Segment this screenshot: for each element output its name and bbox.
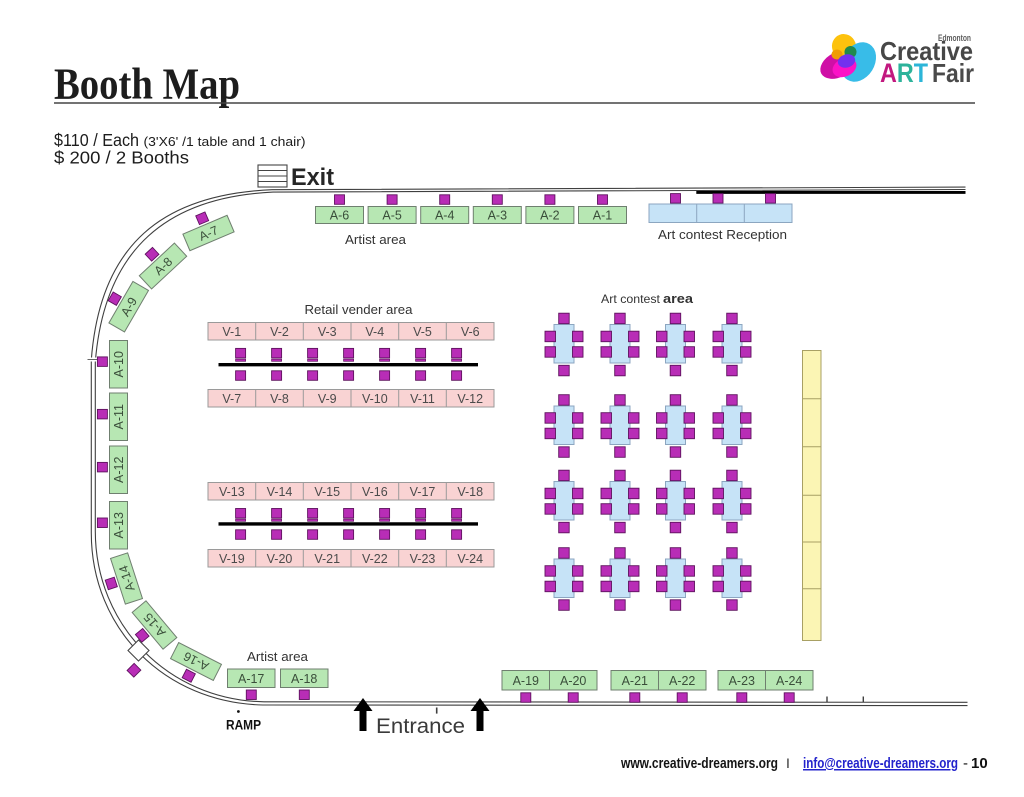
svg-text:Art contest Reception: Art contest Reception: [658, 227, 787, 242]
svg-text:A-3: A-3: [488, 209, 508, 223]
svg-text:V-2: V-2: [270, 325, 289, 339]
svg-text:V-22: V-22: [362, 552, 388, 566]
svg-text:A-23: A-23: [729, 674, 755, 688]
svg-text:V-21: V-21: [314, 552, 340, 566]
svg-text:V-10: V-10: [362, 392, 388, 406]
svg-text:Exit: Exit: [291, 164, 334, 191]
svg-text:V-9: V-9: [318, 392, 337, 406]
svg-text:V-7: V-7: [222, 392, 241, 406]
svg-text:A-24: A-24: [776, 674, 802, 688]
svg-text:A-5: A-5: [382, 209, 402, 223]
svg-text:V-18: V-18: [457, 485, 483, 499]
svg-text:A-18: A-18: [291, 672, 317, 686]
svg-text:Booth Map: Booth Map: [54, 60, 240, 109]
svg-text:V-3: V-3: [318, 325, 337, 339]
svg-text:www.creative-dreamers.org: www.creative-dreamers.org: [620, 755, 778, 772]
svg-text:V-24: V-24: [457, 552, 483, 566]
svg-text:V-20: V-20: [267, 552, 293, 566]
svg-text:$ 200 / 2 Booths: $ 200 / 2 Booths: [54, 148, 189, 168]
svg-text:V-4: V-4: [365, 325, 384, 339]
svg-text:V-5: V-5: [413, 325, 432, 339]
svg-text:V-6: V-6: [461, 325, 480, 339]
svg-text:A-11: A-11: [112, 404, 126, 430]
svg-text:A-4: A-4: [435, 209, 455, 223]
svg-text:RAMP: RAMP: [226, 718, 261, 733]
svg-text:info@creative-dreamers.org: info@creative-dreamers.org: [803, 755, 958, 772]
svg-text:A-13: A-13: [112, 512, 126, 538]
svg-text:A-6: A-6: [330, 209, 350, 223]
svg-text:area: area: [663, 291, 694, 306]
svg-text:V-15: V-15: [314, 485, 340, 499]
svg-text:Entrance: Entrance: [376, 715, 465, 738]
svg-text:V-19: V-19: [219, 552, 245, 566]
svg-text:V-11: V-11: [410, 392, 435, 406]
svg-text:A-1: A-1: [593, 209, 613, 223]
svg-text:I: I: [786, 755, 790, 771]
svg-text:V-14: V-14: [267, 485, 293, 499]
svg-text:A-10: A-10: [112, 351, 126, 377]
svg-text:A-21: A-21: [622, 674, 648, 688]
svg-text:V-1: V-1: [222, 325, 241, 339]
svg-text:V-13: V-13: [219, 485, 245, 499]
svg-text:10: 10: [971, 755, 988, 772]
svg-text:A-2: A-2: [540, 209, 560, 223]
svg-text:Artist area: Artist area: [247, 649, 309, 664]
svg-text:-: -: [963, 755, 968, 772]
svg-text:V-16: V-16: [362, 485, 388, 499]
svg-text:A-12: A-12: [112, 457, 126, 483]
svg-text:V-17: V-17: [410, 485, 436, 499]
svg-text:V-23: V-23: [410, 552, 436, 566]
svg-text:V-12: V-12: [457, 392, 483, 406]
svg-text:Retail vender area: Retail vender area: [305, 302, 414, 317]
svg-text:A-17: A-17: [238, 672, 264, 686]
svg-text:Fair: Fair: [932, 58, 974, 88]
svg-text:A-22: A-22: [669, 674, 695, 688]
svg-text:V-8: V-8: [270, 392, 289, 406]
svg-text:Artist area: Artist area: [345, 232, 407, 247]
svg-text:A-20: A-20: [560, 674, 586, 688]
svg-text:ART: ART: [880, 58, 928, 88]
svg-text:A-19: A-19: [513, 674, 539, 688]
svg-text:Art contest: Art contest: [601, 292, 661, 306]
